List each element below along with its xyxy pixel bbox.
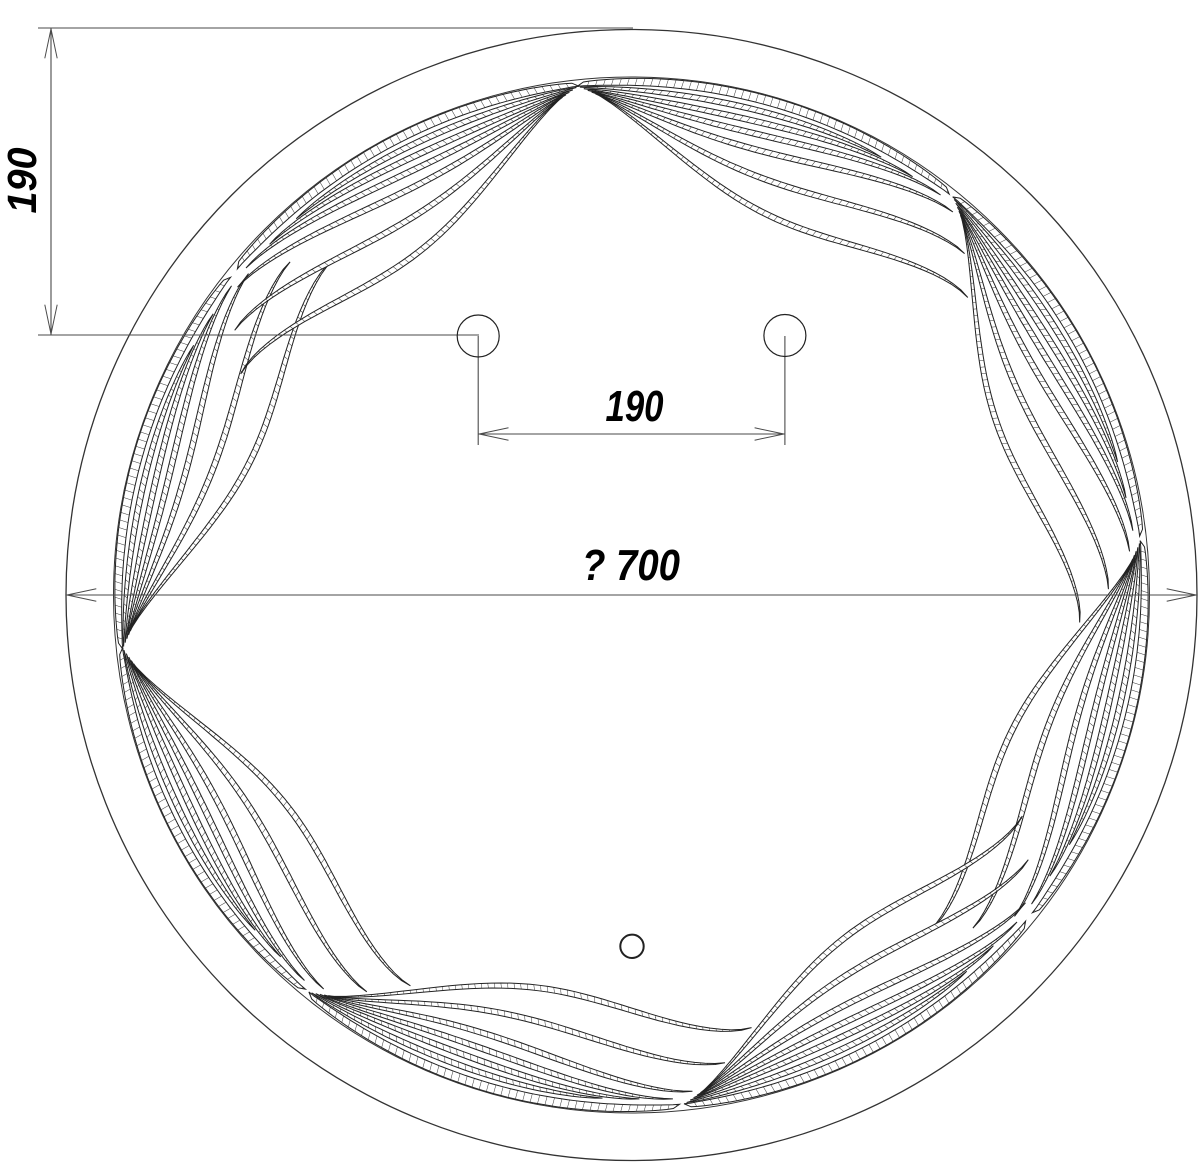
svg-text:190: 190 xyxy=(606,382,664,431)
svg-text:190: 190 xyxy=(0,147,45,213)
svg-text:? 700: ? 700 xyxy=(582,541,680,590)
